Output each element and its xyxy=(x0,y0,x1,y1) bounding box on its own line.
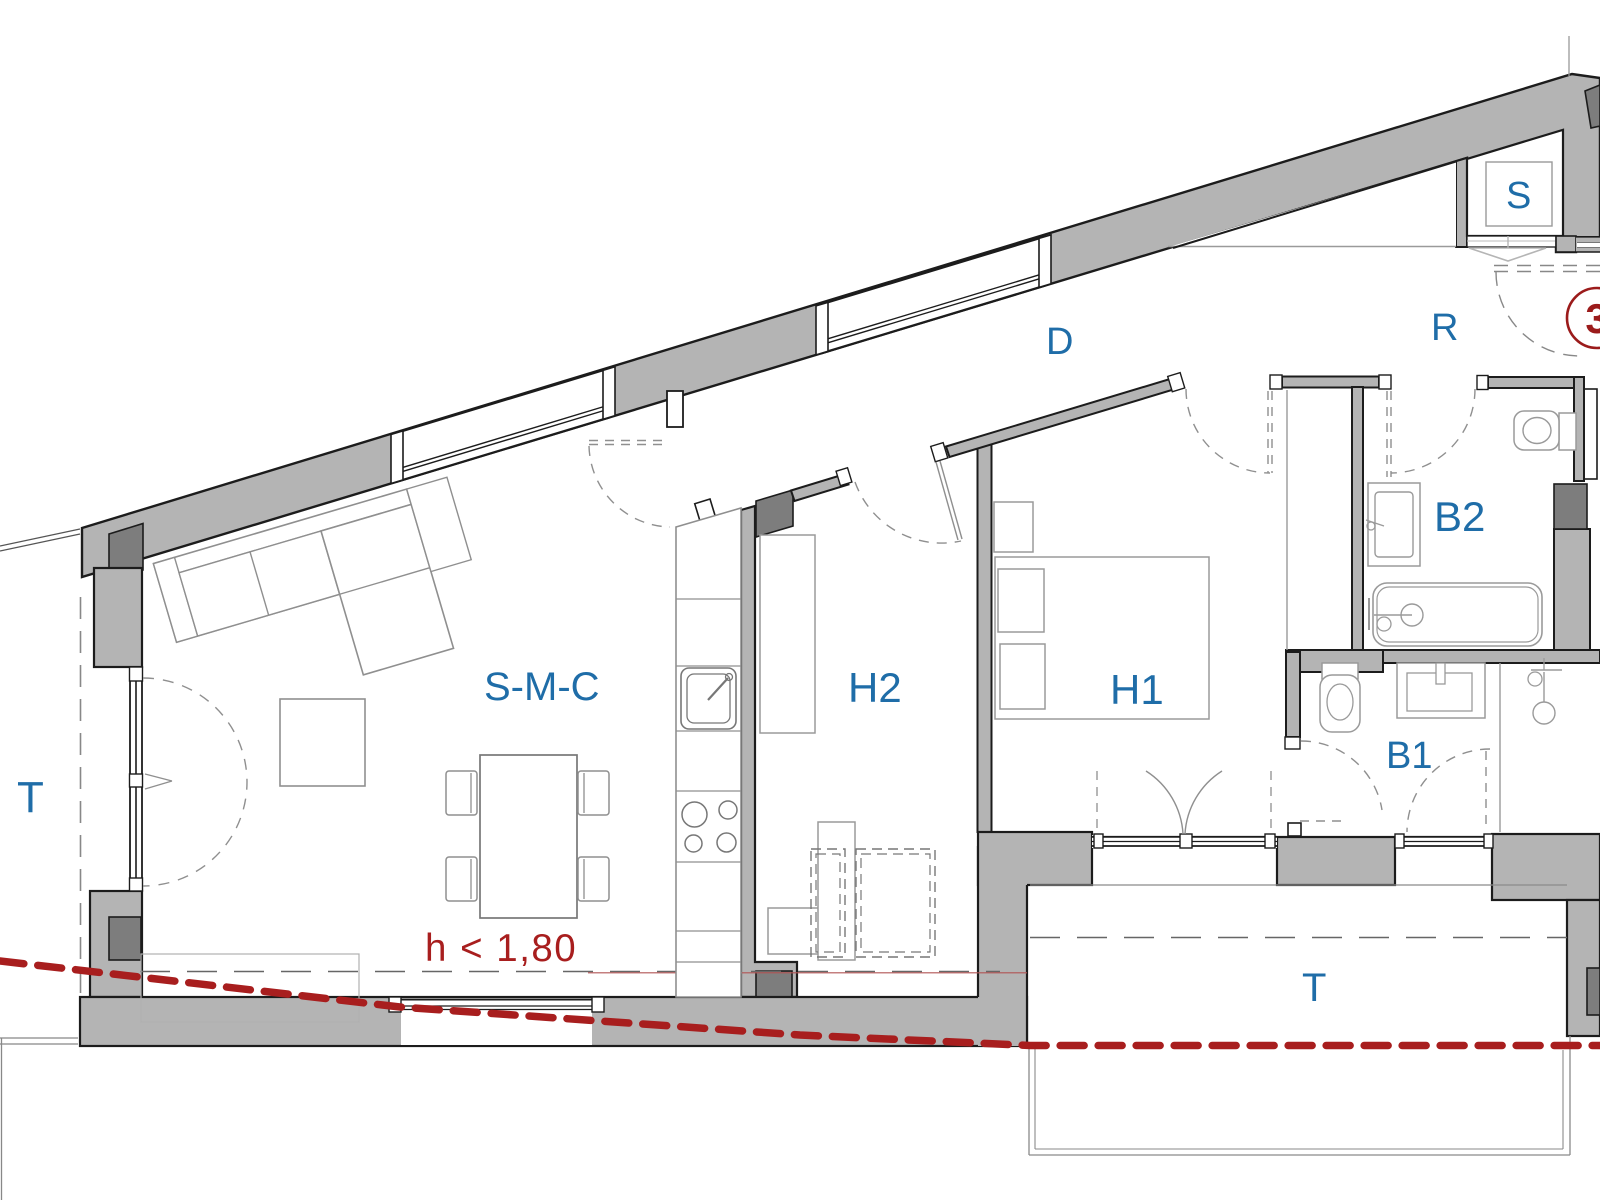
svg-text:H1: H1 xyxy=(1110,666,1164,713)
svg-text:T: T xyxy=(17,773,44,822)
svg-text:H2: H2 xyxy=(848,664,902,711)
svg-text:3: 3 xyxy=(1585,295,1600,342)
svg-text:B1: B1 xyxy=(1386,735,1432,777)
svg-text:h < 1,80: h < 1,80 xyxy=(425,927,577,970)
svg-text:R: R xyxy=(1431,307,1458,349)
svg-text:S-M-C: S-M-C xyxy=(484,665,600,709)
svg-text:T: T xyxy=(1302,966,1326,1010)
svg-text:B2: B2 xyxy=(1434,493,1485,540)
svg-text:D: D xyxy=(1046,321,1073,363)
svg-text:S: S xyxy=(1506,175,1531,217)
